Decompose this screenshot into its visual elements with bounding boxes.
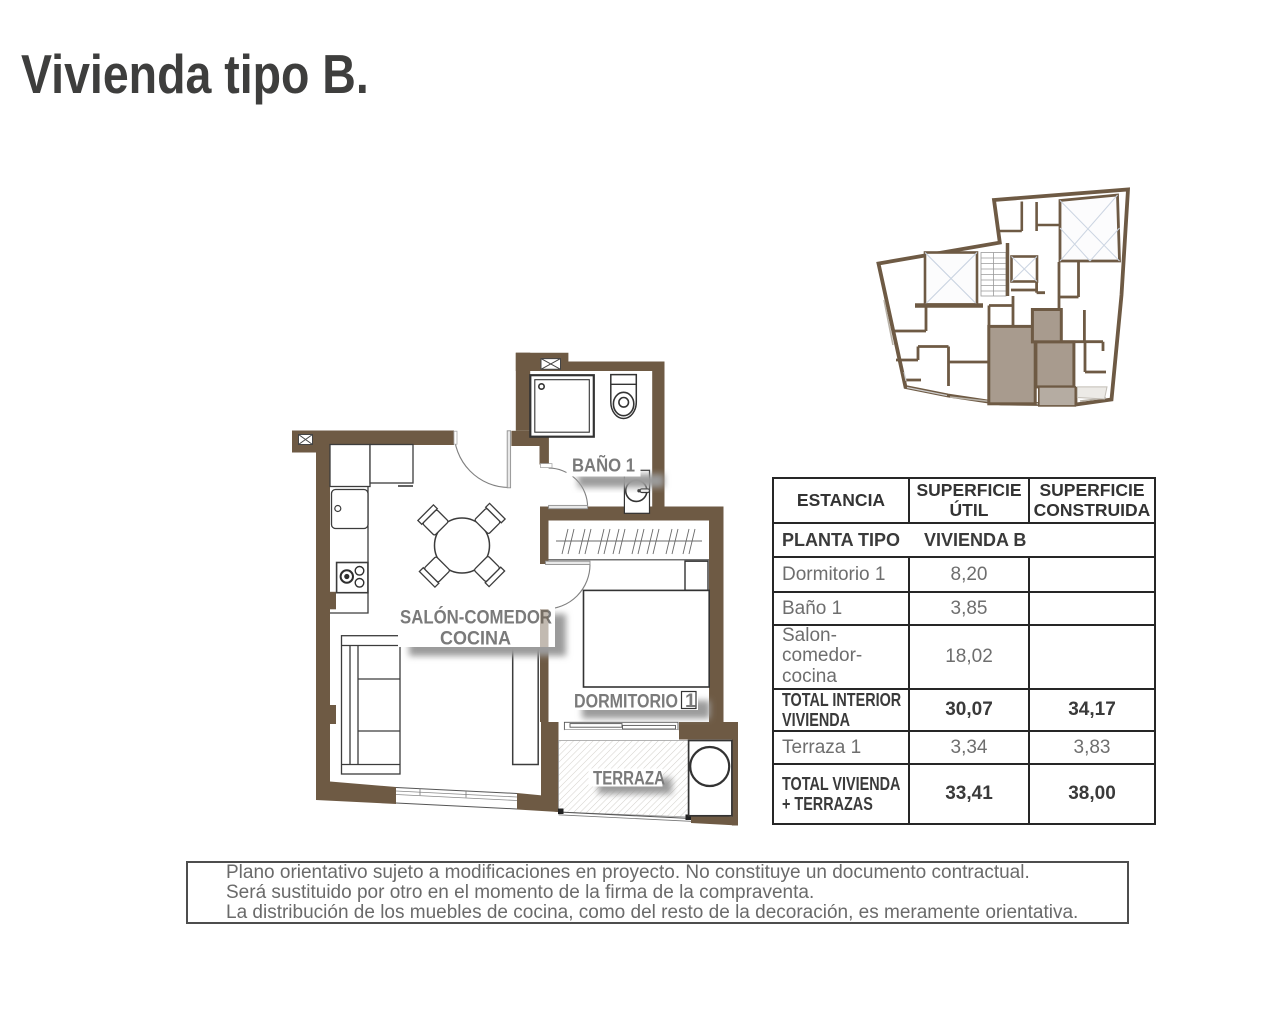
svg-text:COCINA: COCINA <box>440 628 511 650</box>
svg-text:BAÑO 1: BAÑO 1 <box>572 455 635 476</box>
svg-text:1: 1 <box>685 690 696 712</box>
svg-text:DORMITORIO: DORMITORIO <box>574 691 678 713</box>
svg-text:SALÓN-COMEDOR: SALÓN-COMEDOR <box>400 605 552 629</box>
svg-text:TERRAZA: TERRAZA <box>593 768 665 790</box>
